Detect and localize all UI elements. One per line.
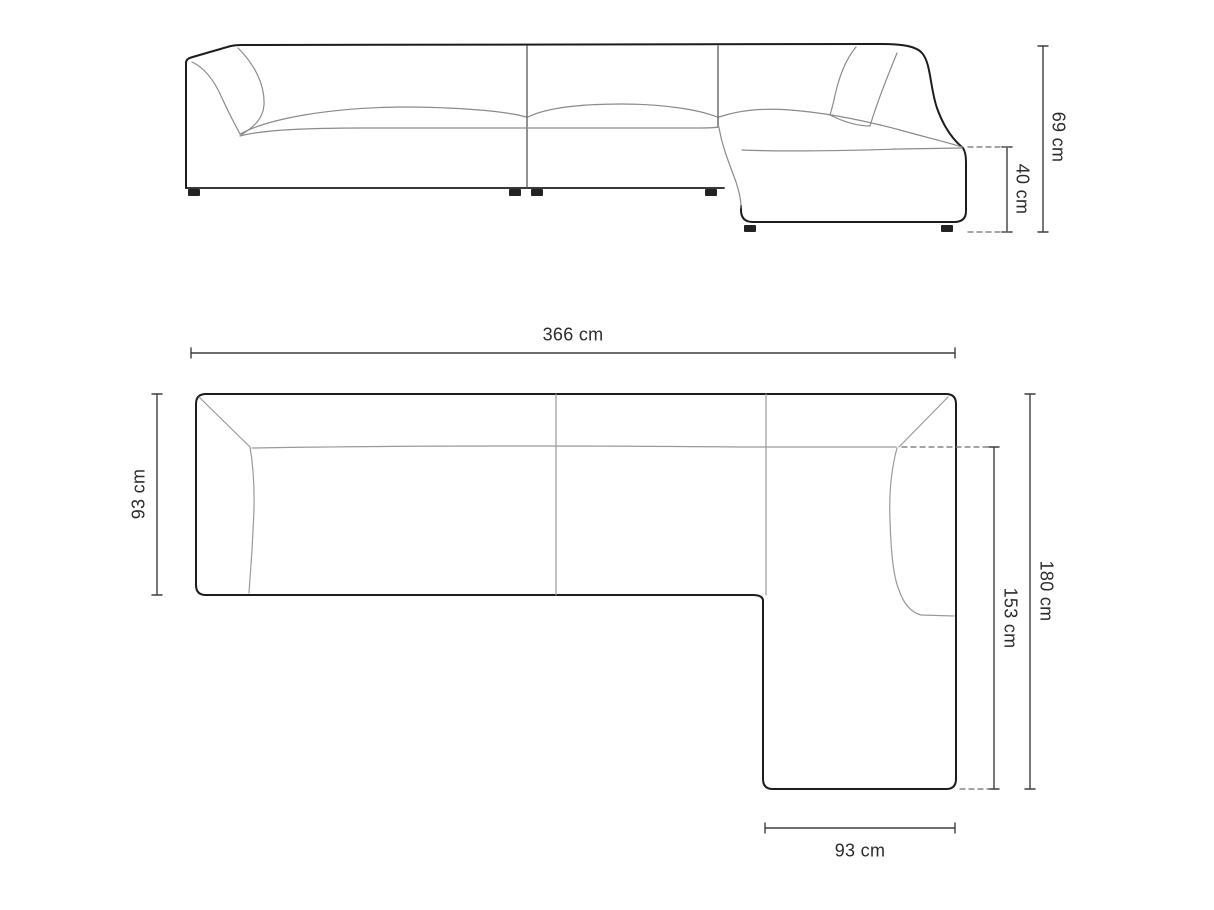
plan-right-diagonal: [899, 397, 948, 447]
elevation-chaise-seat-line: [719, 109, 962, 147]
plan-dimensions: [152, 348, 1035, 833]
elevation-back-cushion-right-edge: [870, 53, 897, 126]
elevation-arm-curve-inner: [238, 48, 264, 135]
plan-left-diagonal: [199, 397, 250, 447]
plan-dashed-extensions: [902, 447, 990, 789]
elevation-arm-curve-outer: [192, 62, 240, 134]
sofa-dimension-sheet: 69 cm 40 cm 366 cm 93 cm 180 cm 153 cm 9…: [0, 0, 1214, 910]
plan-view: [152, 348, 1035, 833]
dimension-label-side-total-length: 180 cm: [1036, 561, 1057, 622]
elevation-chaise-front-curve: [719, 128, 741, 208]
dimension-label-seat-height: 40 cm: [1012, 164, 1033, 215]
dimension-label-side-inner-length: 153 cm: [1000, 588, 1021, 649]
elevation-back-cushion-base: [830, 115, 870, 126]
sofa-technical-drawing: [0, 0, 1214, 910]
elevation-outline: [186, 44, 966, 222]
plan-outline: [196, 394, 956, 789]
dimension-label-total-width: 366 cm: [543, 325, 604, 346]
dimension-label-depth: 93 cm: [129, 469, 150, 520]
elevation-back-cushion-left-edge: [830, 47, 856, 115]
dimension-label-total-height: 69 cm: [1048, 112, 1069, 163]
dimension-label-chaise-width: 93 cm: [835, 841, 886, 862]
elevation-view: [186, 44, 1048, 232]
elevation-seat-front-edge: [240, 127, 719, 136]
plan-left-arm-curve: [249, 447, 254, 593]
elevation-chaise-face-edge: [742, 148, 962, 151]
plan-backrest-edge: [252, 446, 896, 448]
plan-chaise-cushion-curve: [890, 448, 954, 616]
elevation-legs: [188, 189, 953, 232]
elevation-dashed-extensions: [968, 147, 1012, 232]
elevation-seat-cushion-middle: [528, 104, 717, 117]
